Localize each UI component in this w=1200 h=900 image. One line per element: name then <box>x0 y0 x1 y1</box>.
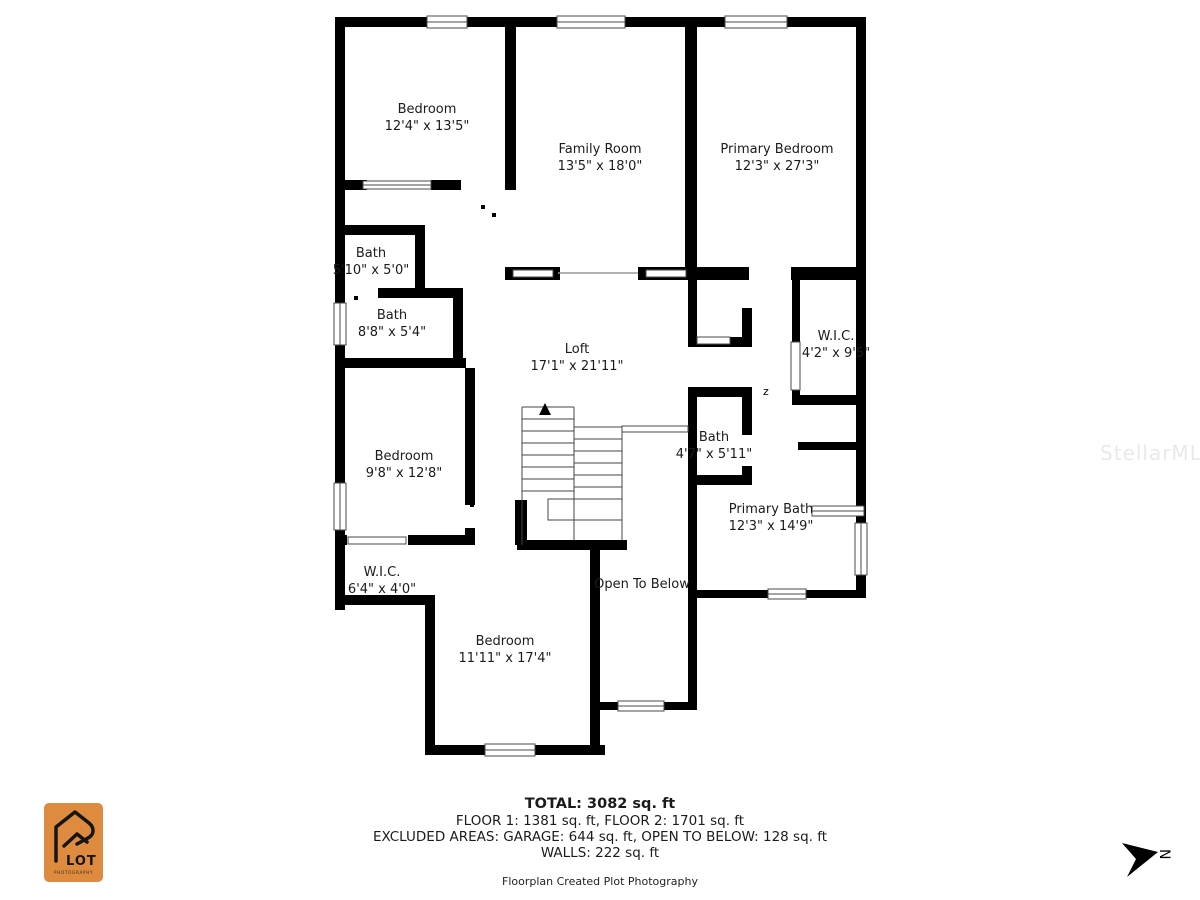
credit-line: Floorplan Created Plot Photography <box>0 875 1200 888</box>
room-size: 12'3" x 14'9" <box>676 519 866 536</box>
room-size: 9'8" x 12'8" <box>309 466 499 483</box>
room-name: Open To Below <box>594 577 690 592</box>
stairs-up-arrow <box>539 403 551 415</box>
room-label-family-room: Family Room 13'5" x 18'0" <box>505 142 695 175</box>
floor-areas: FLOOR 1: 1381 sq. ft, FLOOR 2: 1701 sq. … <box>0 813 1200 829</box>
room-name: Family Room <box>559 142 642 157</box>
room-name: Bedroom <box>398 102 457 117</box>
total-area: TOTAL: 3082 sq. ft <box>0 796 1200 813</box>
staircase <box>522 403 622 545</box>
room-label-primary-bedroom: Primary Bedroom 12'3" x 27'3" <box>682 142 872 175</box>
room-name: Bath <box>356 246 386 261</box>
room-name: Bedroom <box>476 634 535 649</box>
room-name: W.I.C. <box>364 565 401 580</box>
room-label-loft: Loft 17'1" x 21'11" <box>482 342 672 375</box>
room-size: 6'4" x 4'0" <box>287 582 477 599</box>
room-name: W.I.C. <box>818 329 855 344</box>
room-label-bath-3: Bath 4'7" x 5'11" <box>619 430 809 463</box>
room-name: Primary Bedroom <box>720 142 833 157</box>
stellar-mls-watermark: StellarMLS <box>1100 441 1200 465</box>
area-summary: TOTAL: 3082 sq. ft FLOOR 1: 1381 sq. ft,… <box>0 796 1200 888</box>
room-label-bedroom-1: Bedroom 12'4" x 13'5" <box>332 102 522 135</box>
room-size: 4'2" x 9'5" <box>741 346 931 363</box>
door-z-mark: z <box>763 385 769 398</box>
logo-sub: PHOTOGRAPHY <box>54 870 93 875</box>
room-label-wic-2: W.I.C. 6'4" x 4'0" <box>287 565 477 598</box>
logo-name: LOT <box>66 854 97 869</box>
room-name: Bath <box>699 430 729 445</box>
walls-area: WALLS: 222 sq. ft <box>0 845 1200 861</box>
room-size: 8'8" x 5'4" <box>297 325 487 342</box>
room-size: 4'7" x 5'11" <box>619 447 809 464</box>
room-size: 11'11" x 17'4" <box>410 651 600 668</box>
excluded-areas: EXCLUDED AREAS: GARAGE: 644 sq. ft, OPEN… <box>0 829 1200 845</box>
room-label-wic-1: W.I.C. 4'2" x 9'5" <box>741 329 931 362</box>
room-name: Bedroom <box>375 449 434 464</box>
room-label-bedroom-2: Bedroom 9'8" x 12'8" <box>309 449 499 482</box>
room-name: Loft <box>565 342 589 357</box>
floorplan-page: StellarMLS <box>0 0 1200 900</box>
room-label-bath-1: Bath 5'10" x 5'0" <box>276 246 466 279</box>
room-label-open-to-below: Open To Below <box>547 577 737 594</box>
room-size: 12'4" x 13'5" <box>332 119 522 136</box>
floorplan-drawing: z N <box>0 0 1200 900</box>
room-label-bath-2: Bath 8'8" x 5'4" <box>297 308 487 341</box>
room-name: Primary Bath <box>729 502 814 517</box>
plot-photography-logo: LOT PHOTOGRAPHY <box>44 803 103 882</box>
room-size: 13'5" x 18'0" <box>505 159 695 176</box>
room-name: Bath <box>377 308 407 323</box>
room-size: 17'1" x 21'11" <box>482 359 672 376</box>
room-label-bedroom-3: Bedroom 11'11" x 17'4" <box>410 634 600 667</box>
room-label-primary-bath: Primary Bath 12'3" x 14'9" <box>676 502 866 535</box>
room-size: 12'3" x 27'3" <box>682 159 872 176</box>
room-size: 5'10" x 5'0" <box>276 263 466 280</box>
